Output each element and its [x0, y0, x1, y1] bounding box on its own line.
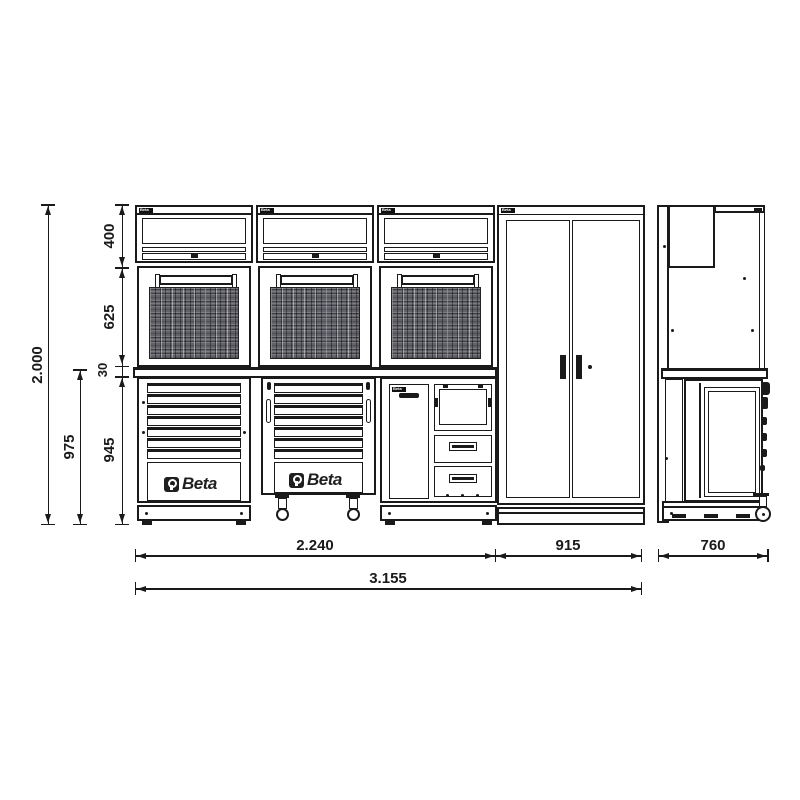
- dim-arrow: [45, 514, 51, 523]
- dim-label-975: 975: [62, 427, 78, 467]
- dim-label-625: 625: [102, 297, 118, 337]
- dim-arrow: [660, 553, 669, 559]
- door-handle-left: [560, 355, 566, 379]
- drawer: [274, 405, 363, 415]
- drawer: [434, 466, 492, 497]
- dim-arrow: [137, 553, 146, 559]
- beta-logo: Beta: [289, 470, 342, 490]
- cabinet-door-right: [572, 220, 640, 498]
- door-handle-right: [576, 355, 582, 379]
- dim-label-760: 760: [683, 538, 743, 554]
- dim-label-3155: 3.155: [353, 571, 423, 587]
- side-hook-large: [761, 382, 770, 395]
- worktop-side: [661, 368, 768, 379]
- side-hook: [267, 382, 271, 390]
- dim-arrow: [631, 586, 640, 592]
- open-compartment: [434, 384, 492, 431]
- dim-line-total-height: [48, 205, 50, 525]
- front-upright: [759, 212, 765, 373]
- wall-cabinet-2: Beta: [256, 205, 374, 263]
- side-knob: [761, 433, 767, 441]
- top-rail-side: [714, 205, 765, 213]
- beta-wordmark: Beta: [182, 474, 217, 494]
- dim-arrow: [485, 553, 494, 559]
- dim-arrow: [119, 269, 125, 278]
- drawer: [147, 449, 241, 459]
- dim-tick: [115, 524, 129, 526]
- dim-line-915: [495, 555, 641, 557]
- drawer-handle-bar: [452, 477, 474, 480]
- dim-label-30: 30: [95, 355, 111, 385]
- side-handle: [266, 399, 271, 423]
- hinge: [443, 385, 448, 388]
- compartment-panel: [439, 389, 487, 425]
- plinth-line: [499, 512, 643, 514]
- foot: [482, 520, 492, 525]
- tall-narrow-door: Beta: [389, 384, 429, 499]
- drawer: [147, 383, 241, 393]
- foot: [385, 520, 395, 525]
- dim-arrow: [119, 514, 125, 523]
- door-knob: [433, 254, 440, 258]
- dim-tick: [115, 366, 129, 368]
- rail-bracket-left: [276, 274, 281, 288]
- rail-bracket-left: [155, 274, 160, 288]
- hinge: [478, 385, 483, 388]
- screw-dot: [461, 494, 464, 497]
- side-handle: [366, 399, 371, 423]
- drawer-handle-bar: [452, 445, 474, 448]
- caster-tyre: [755, 506, 771, 522]
- drawer: [434, 435, 492, 463]
- technical-drawing-canvas: Beta Beta Beta: [0, 0, 800, 800]
- module-frame: Beta: [380, 377, 497, 503]
- side-hook: [761, 397, 768, 409]
- beta-wrench-icon: [164, 477, 179, 492]
- dim-label-400: 400: [102, 216, 118, 256]
- screw-dot: [665, 457, 668, 460]
- drawer: [274, 394, 363, 404]
- drawer: [274, 438, 363, 448]
- dim-arrow: [77, 371, 83, 380]
- screw-dot: [446, 494, 449, 497]
- caster-tyre: [347, 508, 360, 521]
- drawer: [147, 416, 241, 426]
- side-hook: [366, 382, 370, 390]
- cabinet-body: Beta: [261, 377, 376, 495]
- tall-cabinet-body: Beta: [497, 205, 645, 505]
- top-rail-end: [754, 208, 762, 211]
- screw-dot: [663, 245, 666, 248]
- dim-line-3155: [135, 588, 641, 590]
- logo-panel: Beta: [274, 462, 363, 493]
- dim-arrow: [137, 586, 146, 592]
- wall-cabinet-top-strip: Beta: [258, 207, 372, 215]
- side-panel-outer: [704, 387, 760, 497]
- plinth: [380, 505, 497, 521]
- dim-label-2240: 2.240: [280, 538, 350, 554]
- side-knob: [761, 417, 767, 425]
- latch: [488, 398, 491, 407]
- beta-mini-label: Beta: [501, 208, 515, 213]
- caster-hub: [762, 513, 765, 516]
- drawer: [274, 449, 363, 459]
- screw-dot: [142, 431, 145, 434]
- service-module: Beta: [380, 377, 497, 525]
- caster-wheel-side: [751, 491, 777, 527]
- caster-wheel: [273, 495, 293, 527]
- beta-mini-label: Beta: [260, 208, 274, 213]
- beta-wrench-icon: [289, 473, 304, 488]
- side-elevation: [657, 205, 777, 527]
- logo-panel: Beta: [147, 462, 241, 501]
- lift-up-door: [142, 218, 246, 244]
- door-bottom-rail: [142, 247, 246, 252]
- rail-bracket-right: [474, 274, 479, 288]
- cabinet-body: Beta: [137, 377, 251, 503]
- side-leg: [665, 379, 683, 502]
- perforated-panel: [391, 287, 481, 359]
- plinth: [137, 505, 251, 521]
- door-handle: [399, 393, 419, 398]
- dim-arrow: [497, 553, 506, 559]
- drawer: [274, 383, 363, 393]
- lift-up-door: [263, 218, 367, 244]
- dim-line-975: [80, 370, 82, 524]
- roller-cabinet: Beta: [261, 377, 376, 527]
- screw-dot: [240, 512, 243, 515]
- plinth-side: [662, 501, 765, 521]
- rail-bracket-right: [232, 274, 237, 288]
- beta-mini-label: Beta: [381, 208, 395, 213]
- lift-up-door: [384, 218, 488, 244]
- screw-dot: [743, 277, 746, 280]
- rail-bracket-right: [353, 274, 358, 288]
- door-bottom-rail: [384, 247, 488, 252]
- wall-cabinet-top-strip: Beta: [137, 207, 251, 215]
- beta-mini-label: Beta: [392, 387, 406, 392]
- dim-arrow: [119, 378, 125, 387]
- drawer: [147, 438, 241, 448]
- roller-cab-side: [684, 379, 763, 502]
- screw-dot: [388, 512, 391, 515]
- foot: [142, 520, 152, 525]
- foot-mark: [672, 514, 686, 518]
- dim-arrow: [45, 206, 51, 215]
- screw-dot: [142, 401, 145, 404]
- door-bottom-rail: [263, 247, 367, 252]
- dim-line-2240: [135, 555, 495, 557]
- beta-mini-label: Beta: [139, 208, 153, 213]
- dim-label-945: 945: [102, 430, 118, 470]
- dim-arrow: [119, 257, 125, 266]
- panel-bay-2: [258, 266, 372, 367]
- side-knob: [761, 449, 767, 457]
- latch: [435, 398, 438, 407]
- side-frame-line: [699, 383, 701, 498]
- drawer: [147, 427, 241, 437]
- dim-arrow: [119, 355, 125, 364]
- fixed-drawer-cabinet: Beta: [137, 377, 251, 525]
- screw-dot: [243, 431, 246, 434]
- tall-cabinet: Beta: [497, 205, 645, 525]
- rail-bracket-left: [397, 274, 402, 288]
- beta-logo: Beta: [164, 474, 217, 494]
- drawer: [147, 394, 241, 404]
- drawer: [274, 427, 363, 437]
- panel-bay-1: [137, 266, 251, 367]
- caster-wheel: [344, 495, 364, 527]
- plinth: [497, 507, 645, 525]
- foot-mark: [736, 514, 750, 518]
- dim-line-760: [658, 555, 768, 557]
- dim-label-915: 915: [538, 538, 598, 554]
- screw-dot: [751, 329, 754, 332]
- drawer: [274, 416, 363, 426]
- dim-label-total-height: 2.000: [30, 340, 46, 390]
- tool-rail: [401, 275, 475, 285]
- screw-dot: [486, 512, 489, 515]
- panel-bay-3: [379, 266, 493, 367]
- wall-cabinet-3: Beta: [377, 205, 495, 263]
- door-knob: [312, 254, 319, 258]
- dim-arrow: [77, 514, 83, 523]
- wall-cabinet-top-strip: Beta: [379, 207, 493, 215]
- dim-arrow: [631, 553, 640, 559]
- plinth-line: [664, 506, 763, 508]
- screw-dot: [476, 494, 479, 497]
- tool-rail: [280, 275, 354, 285]
- tool-rail: [159, 275, 233, 285]
- perforated-panel: [149, 287, 239, 359]
- drawer-handle: [449, 474, 477, 483]
- dim-arrow: [757, 553, 766, 559]
- wall-cabinet-1: Beta: [135, 205, 253, 263]
- drawer-handle: [449, 442, 477, 451]
- door-knob: [191, 254, 198, 258]
- foot-mark: [704, 514, 718, 518]
- foot: [236, 520, 246, 525]
- caster-tyre: [276, 508, 289, 521]
- wall-cabinet-side: [668, 205, 715, 268]
- drawer: [147, 405, 241, 415]
- drawer-unit: [434, 384, 492, 499]
- beta-wordmark: Beta: [307, 470, 342, 490]
- perforated-panel: [270, 287, 360, 359]
- screw-dot: [145, 512, 148, 515]
- dim-arrow: [119, 206, 125, 215]
- side-panel-inner: [708, 391, 756, 493]
- side-knob: [760, 465, 765, 471]
- tall-cabinet-top-strip: Beta: [499, 207, 643, 215]
- screw-dot: [671, 329, 674, 332]
- door-lock: [588, 365, 592, 369]
